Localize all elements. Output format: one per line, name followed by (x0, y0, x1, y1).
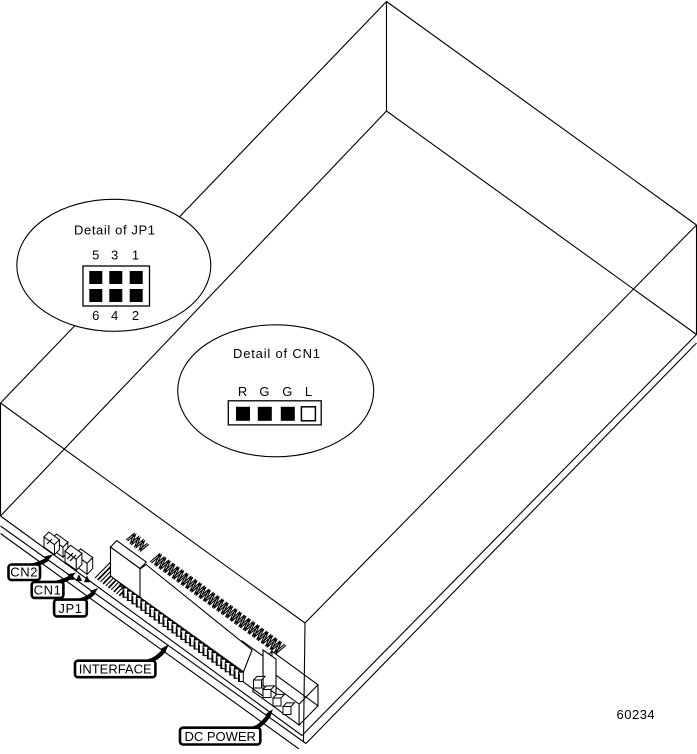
svg-text:6: 6 (92, 308, 99, 323)
svg-text:CN1: CN1 (34, 582, 62, 597)
svg-text:G: G (259, 384, 269, 399)
svg-text:3: 3 (111, 248, 118, 263)
svg-text:4: 4 (111, 308, 118, 323)
svg-text:DC POWER: DC POWER (184, 729, 256, 744)
svg-text:Detail of JP1: Detail of JP1 (74, 223, 155, 238)
svg-text:60234: 60234 (617, 707, 656, 722)
svg-text:CN2: CN2 (10, 565, 38, 580)
svg-text:JP1: JP1 (58, 601, 82, 616)
svg-text:INTERFACE: INTERFACE (79, 662, 152, 677)
svg-text:1: 1 (132, 248, 139, 263)
svg-text:5: 5 (92, 248, 99, 263)
svg-text:L: L (305, 384, 312, 399)
svg-text:Detail of CN1: Detail of CN1 (233, 346, 320, 361)
svg-text:G: G (282, 384, 292, 399)
svg-text:R: R (238, 384, 247, 399)
svg-text:2: 2 (132, 308, 139, 323)
